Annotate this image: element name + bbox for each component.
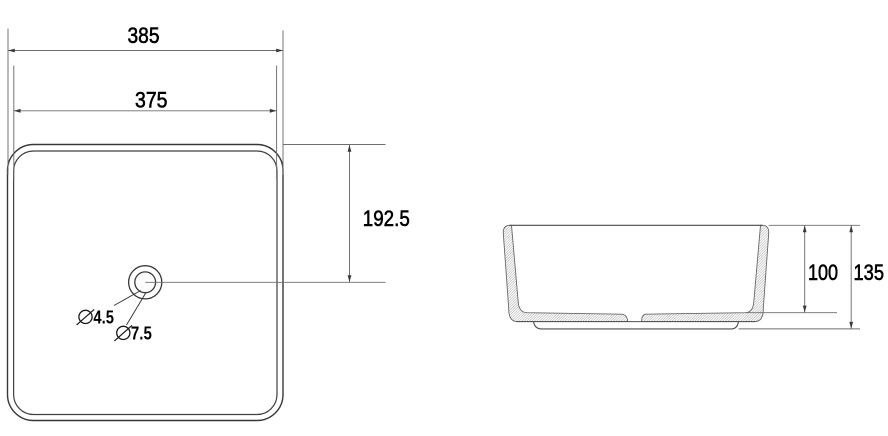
svg-text:135: 135 bbox=[854, 260, 885, 285]
svg-text:100: 100 bbox=[808, 260, 838, 285]
svg-text:375: 375 bbox=[135, 87, 168, 112]
svg-text:192.5: 192.5 bbox=[363, 206, 410, 231]
svg-text:7.5: 7.5 bbox=[131, 323, 152, 344]
svg-text:4.5: 4.5 bbox=[93, 307, 114, 328]
svg-text:385: 385 bbox=[128, 23, 160, 48]
